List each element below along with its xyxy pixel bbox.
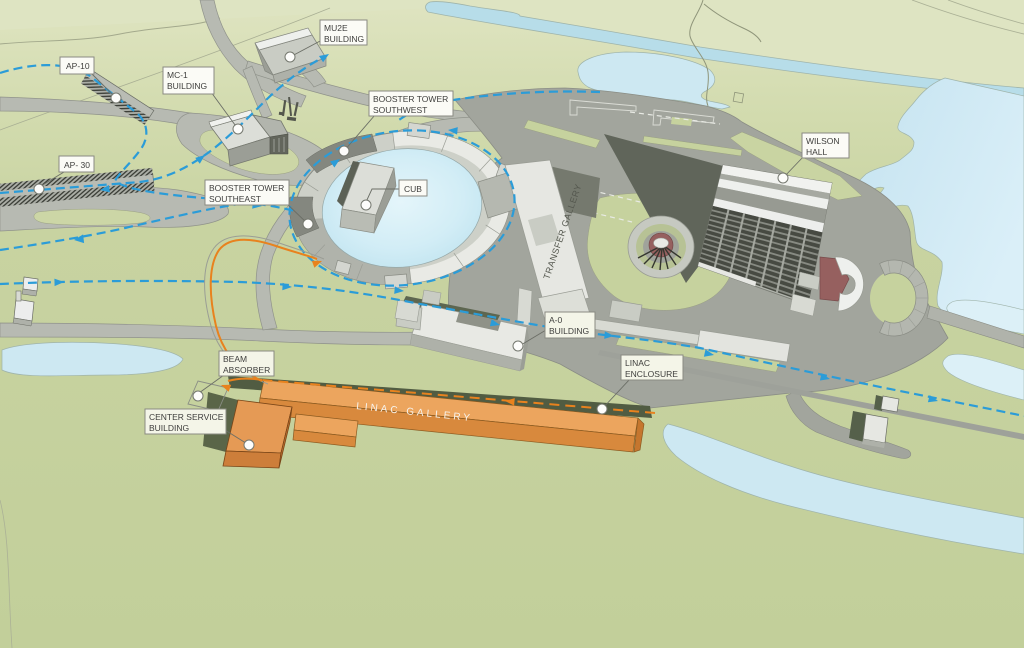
svg-text:CENTER SERVICE: CENTER SERVICE	[149, 412, 224, 422]
svg-text:BUILDING: BUILDING	[149, 423, 189, 433]
svg-text:ABSORBER: ABSORBER	[223, 365, 270, 375]
svg-text:SOUTHEAST: SOUTHEAST	[209, 194, 261, 204]
svg-text:WILSON: WILSON	[806, 136, 840, 146]
svg-text:AP- 30: AP- 30	[64, 160, 90, 170]
svg-text:BOOSTER TOWER: BOOSTER TOWER	[373, 94, 448, 104]
svg-text:SOUTHWEST: SOUTHWEST	[373, 105, 427, 115]
svg-text:BUILDING: BUILDING	[167, 81, 207, 91]
svg-text:BUILDING: BUILDING	[549, 326, 589, 336]
svg-text:MC-1: MC-1	[167, 70, 188, 80]
svg-text:A-0: A-0	[549, 315, 563, 325]
svg-text:LINAC: LINAC	[625, 358, 650, 368]
svg-text:CUB: CUB	[404, 184, 422, 194]
svg-text:MU2E: MU2E	[324, 23, 348, 33]
svg-text:HALL: HALL	[806, 147, 828, 157]
svg-text:AP-10: AP-10	[66, 61, 90, 71]
svg-text:ENCLOSURE: ENCLOSURE	[625, 369, 678, 379]
svg-text:BOOSTER TOWER: BOOSTER TOWER	[209, 183, 284, 193]
svg-text:BUILDING: BUILDING	[324, 34, 364, 44]
svg-text:BEAM: BEAM	[223, 354, 247, 364]
